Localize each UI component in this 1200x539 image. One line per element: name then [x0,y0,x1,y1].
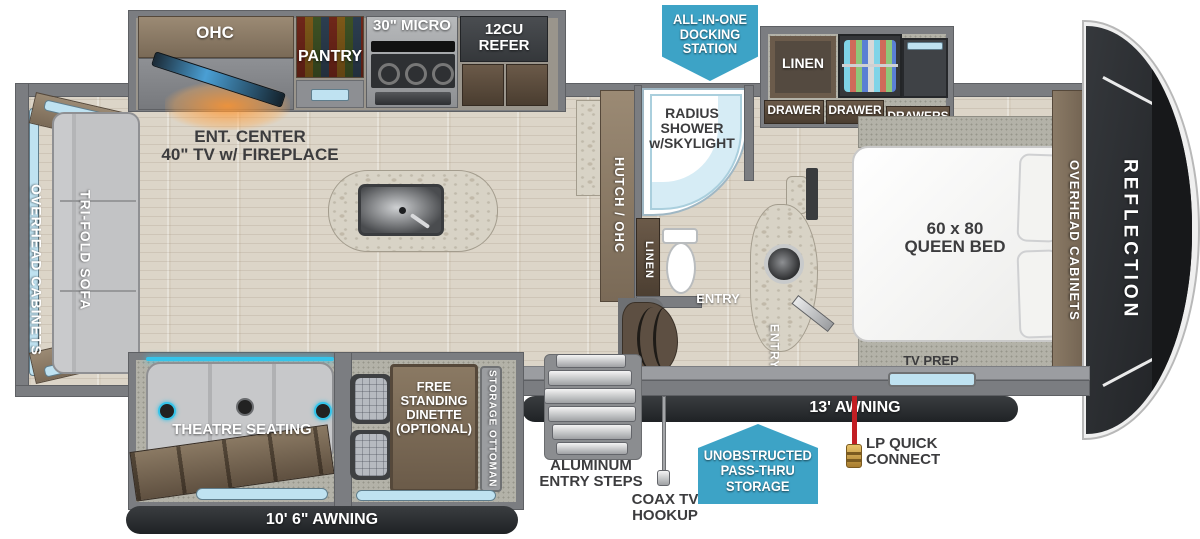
step [556,442,628,455]
coax-cable [662,396,666,472]
lp-connector-band [847,452,861,455]
burner [405,63,427,85]
burner [378,63,400,85]
hutch-counter [576,100,602,196]
tv-prep-label: TV PREP [896,354,966,368]
step [552,424,632,440]
dinette-label: FREE STANDING DINETTE (OPTIONAL) [388,380,480,436]
closet-rod [842,64,898,67]
cupholder [314,402,332,420]
hutch-label: HUTCH / OHC [606,120,632,290]
bedroom-nightstand [902,38,948,98]
dinette-window [356,490,496,501]
queen-bed-label: 60 x 80 QUEEN BED [880,220,1030,257]
hall-wall [744,85,754,181]
step [556,354,626,368]
burner [432,63,454,85]
island-sink [358,184,444,236]
sofa-seam [60,200,136,202]
step [548,406,636,422]
faucet [410,213,430,229]
micro-label: 30" MICRO [366,18,458,34]
passthru-label: UNOBSTRUCTED PASS-THRU STORAGE [704,448,812,493]
coax-label: COAX TV HOOKUP [620,492,710,524]
dinette-chair [350,430,392,480]
tri-fold-sofa-label: TRI-FOLD SOFA [74,170,96,330]
storage-ottoman-label: STORAGE OTTOMAN [480,370,502,488]
coax-connector [657,470,670,486]
cap-inner-shadow [1152,66,1192,396]
bath-linen-label: LINEN [636,230,660,290]
cooktop [371,54,455,88]
step [544,388,636,404]
bed-bench-top [858,116,1062,148]
tv-prep-window [888,372,976,387]
ohc-label: OHC [170,24,260,42]
bath-entry-label: ENTRY [694,292,742,306]
refer-drawer [462,64,504,106]
nightstand-top [907,42,943,50]
lp-label: LP QUICK CONNECT [866,436,976,468]
step [548,370,632,386]
oven [375,92,451,105]
slide-divider-wall [334,352,352,510]
vanity-sink [764,244,804,284]
sofa-seam [60,290,136,292]
dinette-chair [350,374,392,424]
rv-floorplan: OVERHEAD CABINETS TRI-FOLD SOFA OHC PANT… [0,0,1200,539]
refer-drawer [506,64,548,106]
rear-awning-label: 10' 6" AWNING [266,511,378,528]
pantry-counter [296,80,364,108]
docking-callout: ALL-IN-ONE DOCKING STATION [662,5,758,81]
passthru-callout: UNOBSTRUCTED PASS-THRU STORAGE [698,424,818,504]
drawer-mid-label: DRAWER [826,104,884,117]
chair-cushion [355,434,387,476]
pantry-label: PANTRY [288,48,372,65]
cupholder [236,398,254,416]
pantry-cabinet [296,16,364,78]
lp-connector [846,444,862,468]
radius-shower-label: RADIUS SHOWER w/SKYLIGHT [648,106,736,151]
bedroom-linen-label: LINEN [770,56,836,71]
reflection-brand: REFLECTION [1114,125,1144,355]
door-swing-arc [653,307,678,371]
rear-awning-bar: 10' 6" AWNING [126,506,518,534]
theatre-window [196,488,328,500]
ent-center-label: ENT. CENTER 40" TV w/ FIREPLACE [150,128,350,165]
tri-fold-sofa [52,112,140,374]
refer-label: 12CU REFER [460,22,548,54]
lp-connector-band [847,459,861,462]
drawer-left-label: DRAWER [764,104,824,117]
rear-overhead-cabinets-label: OVERHEAD CABINETS [24,140,48,400]
lp-line [852,396,857,444]
entry-steps-label: ALUMINUM ENTRY STEPS [532,458,650,490]
range-hood-bar [371,41,455,52]
toilet-bowl [666,242,696,294]
top-wall-left [15,83,130,97]
docking-label: ALL-IN-ONE DOCKING STATION [673,13,747,57]
wardrobe [838,34,902,98]
vanity-partition [806,168,818,220]
sink-drain [399,207,406,214]
counter-inset [311,89,349,101]
theatre-label: THEATRE SEATING [158,422,326,438]
cupholder [158,402,176,420]
theatre-glow [146,357,334,361]
chair-cushion [355,378,387,420]
